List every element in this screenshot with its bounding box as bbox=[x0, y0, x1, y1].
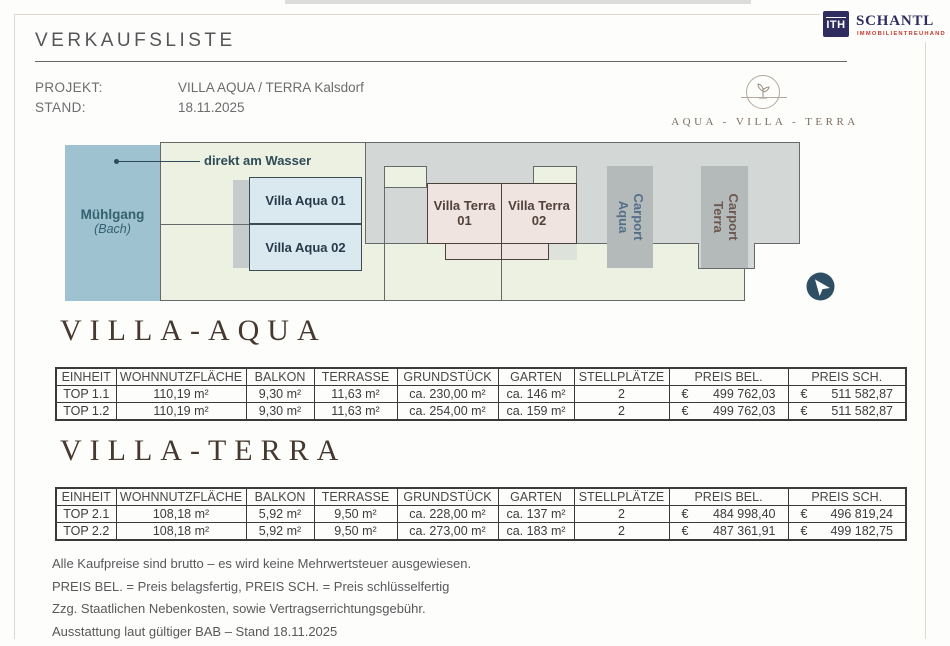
villa-terra-02-label: Villa Terra bbox=[508, 198, 570, 213]
cell-stellplaetze: 2 bbox=[574, 523, 669, 541]
cell-preis-sch: €496 819,24 bbox=[788, 506, 906, 523]
cell-stellplaetze: 2 bbox=[574, 403, 669, 421]
green-tab-left bbox=[384, 166, 427, 188]
cell-wohnnutzflaeche: 108,18 m² bbox=[116, 523, 246, 541]
site-plan: Mühlgang (Bach) Villa Aqua 01 Villa Aqua… bbox=[65, 140, 800, 302]
footnote-line: Alle Kaufpreise sind brutto – es wird ke… bbox=[52, 556, 471, 571]
cell-garten: ca. 137 m² bbox=[498, 506, 574, 523]
cell-preis-bel: €499 762,03 bbox=[669, 386, 788, 403]
villa-terra-01-step bbox=[445, 243, 502, 260]
footnote-line: PREIS BEL. = Preis belagsfertig, PREIS S… bbox=[52, 579, 471, 594]
cell-einheit: TOP 1.2 bbox=[56, 403, 116, 421]
cell-preis-sch: €511 582,87 bbox=[788, 403, 906, 421]
currency-symbol: € bbox=[801, 386, 808, 402]
company-logo: ITH SCHANTL IMMOBILIENTREUHAND bbox=[820, 8, 945, 42]
cell-grundstueck: ca. 228,00 m² bbox=[397, 506, 498, 523]
col-stellplaetze: STELLPLÄTZE bbox=[574, 488, 669, 506]
villa-aqua-01-building: Villa Aqua 01 bbox=[249, 177, 362, 224]
cell-terrasse: 11,63 m² bbox=[314, 386, 397, 403]
aqua-parcel-line bbox=[160, 224, 249, 225]
col-garten: GARTEN bbox=[498, 488, 574, 506]
cell-terrasse: 11,63 m² bbox=[314, 403, 397, 421]
table-row: TOP 2.2 108,18 m² 5,92 m² 9,50 m² ca. 27… bbox=[56, 523, 906, 541]
cell-terrasse: 9,50 m² bbox=[314, 523, 397, 541]
footnote-line: Zzg. Staatlichen Nebenkosten, sowie Vert… bbox=[52, 601, 471, 616]
cell-preis-sch: €511 582,87 bbox=[788, 386, 906, 403]
col-preis-sch: PREIS SCH. bbox=[788, 368, 906, 386]
cell-einheit: TOP 2.2 bbox=[56, 523, 116, 541]
cell-balkon: 9,30 m² bbox=[246, 403, 314, 421]
price-value: 496 819,24 bbox=[830, 506, 893, 522]
cell-stellplaetze: 2 bbox=[574, 386, 669, 403]
currency-symbol: € bbox=[682, 523, 689, 539]
ith-logo-text: ITH bbox=[826, 17, 845, 31]
col-balkon: BALKON bbox=[246, 368, 314, 386]
table-row: TOP 2.1 108,18 m² 5,92 m² 9,50 m² ca. 22… bbox=[56, 506, 906, 523]
cell-preis-bel: €484 998,40 bbox=[669, 506, 788, 523]
cell-garten: ca. 146 m² bbox=[498, 386, 574, 403]
col-preis-sch: PREIS SCH. bbox=[788, 488, 906, 506]
company-subtitle: IMMOBILIENTREUHAND bbox=[857, 31, 946, 37]
north-arrow-icon bbox=[806, 272, 835, 301]
villa-terra-01-building: Villa Terra 01 bbox=[427, 183, 502, 244]
garden-divider-line bbox=[501, 260, 502, 301]
footnote-line: Ausstattung laut gültiger BAB – Stand 18… bbox=[52, 624, 471, 639]
cell-preis-bel: €499 762,03 bbox=[669, 403, 788, 421]
project-label: PROJEKT: bbox=[35, 80, 103, 95]
cell-terrasse: 9,50 m² bbox=[314, 506, 397, 523]
water-area: Mühlgang (Bach) bbox=[65, 145, 160, 301]
villa-aqua-01-label: Villa Aqua 01 bbox=[265, 193, 345, 208]
carport-aqua-building: Carport Aqua bbox=[607, 166, 653, 268]
col-preis-bel: PREIS BEL. bbox=[669, 488, 788, 506]
villa-terra-table: EINHEIT WOHNNUTZFLÄCHE BALKON TERRASSE G… bbox=[55, 487, 905, 541]
table-header-row: EINHEIT WOHNNUTZFLÄCHE BALKON TERRASSE G… bbox=[56, 488, 906, 506]
villa-terra-01-label: Villa Terra bbox=[434, 198, 496, 213]
estate-logo-caption: AQUA - VILLA - TERRA bbox=[665, 116, 865, 128]
price-value: 499 762,03 bbox=[713, 386, 776, 402]
currency-symbol: € bbox=[801, 523, 808, 539]
water-name: Mühlgang bbox=[65, 207, 160, 222]
stand-value: 18.11.2025 bbox=[178, 100, 245, 115]
section-title-villa-aqua: VILLA-AQUA bbox=[60, 314, 327, 348]
cell-balkon: 9,30 m² bbox=[246, 386, 314, 403]
villa-aqua-02-building: Villa Aqua 02 bbox=[249, 224, 362, 271]
cell-wohnnutzflaeche: 110,19 m² bbox=[116, 386, 246, 403]
cell-grundstueck: ca. 254,00 m² bbox=[397, 403, 498, 421]
page-title: VERKAUFSLISTE bbox=[35, 30, 236, 52]
cell-grundstueck: ca. 273,00 m² bbox=[397, 523, 498, 541]
title-rule bbox=[35, 61, 847, 62]
col-garten: GARTEN bbox=[498, 368, 574, 386]
col-grundstueck: GRUNDSTÜCK bbox=[397, 488, 498, 506]
price-value: 484 998,40 bbox=[713, 506, 776, 522]
col-terrasse: TERRASSE bbox=[314, 368, 397, 386]
estate-logo-groundline bbox=[741, 97, 787, 98]
cell-stellplaetze: 2 bbox=[574, 506, 669, 523]
villa-terra-02-building: Villa Terra 02 bbox=[501, 183, 577, 244]
carport-aqua-label2: Aqua bbox=[615, 167, 630, 267]
water-note-line bbox=[118, 161, 200, 162]
footnotes: Alle Kaufpreise sind brutto – es wird ke… bbox=[52, 556, 471, 646]
price-value: 511 582,87 bbox=[831, 386, 893, 402]
col-wohnnutzflaeche: WOHNNUTZFLÄCHE bbox=[116, 488, 246, 506]
carport-terra-label: Carport bbox=[725, 167, 740, 267]
cell-wohnnutzflaeche: 108,18 m² bbox=[116, 506, 246, 523]
estate-logo-circle bbox=[746, 75, 780, 109]
villa-terra-02-number: 02 bbox=[532, 213, 546, 228]
col-einheit: EINHEIT bbox=[56, 488, 116, 506]
currency-symbol: € bbox=[801, 506, 808, 522]
cell-grundstueck: ca. 230,00 m² bbox=[397, 386, 498, 403]
cell-wohnnutzflaeche: 110,19 m² bbox=[116, 403, 246, 421]
table-row: TOP 1.1 110,19 m² 9,30 m² 11,63 m² ca. 2… bbox=[56, 386, 906, 403]
col-wohnnutzflaeche: WOHNNUTZFLÄCHE bbox=[116, 368, 246, 386]
water-note-label: direkt am Wasser bbox=[204, 153, 311, 168]
ith-logo-icon: ITH bbox=[823, 11, 849, 37]
cell-preis-bel: €487 361,91 bbox=[669, 523, 788, 541]
cell-einheit: TOP 1.1 bbox=[56, 386, 116, 403]
table-row: TOP 1.2 110,19 m² 9,30 m² 11,63 m² ca. 2… bbox=[56, 403, 906, 421]
parcel-divider-line bbox=[384, 166, 385, 301]
carport-terra-label2: Terra bbox=[710, 167, 725, 267]
currency-symbol: € bbox=[682, 403, 689, 419]
project-value: VILLA AQUA / TERRA Kalsdorf bbox=[178, 80, 364, 95]
currency-symbol: € bbox=[682, 386, 689, 402]
water-subname: (Bach) bbox=[65, 222, 160, 236]
col-balkon: BALKON bbox=[246, 488, 314, 506]
col-grundstueck: GRUNDSTÜCK bbox=[397, 368, 498, 386]
cell-garten: ca. 183 m² bbox=[498, 523, 574, 541]
price-value: 487 361,91 bbox=[713, 523, 776, 539]
cell-balkon: 5,92 m² bbox=[246, 506, 314, 523]
col-einheit: EINHEIT bbox=[56, 368, 116, 386]
villa-terra-shadow bbox=[549, 244, 577, 260]
top-edge-strip bbox=[285, 0, 751, 4]
col-preis-bel: PREIS BEL. bbox=[669, 368, 788, 386]
company-name: SCHANTL bbox=[856, 13, 934, 30]
cell-einheit: TOP 2.1 bbox=[56, 506, 116, 523]
col-stellplaetze: STELLPLÄTZE bbox=[574, 368, 669, 386]
carport-aqua-label: Carport bbox=[630, 167, 645, 267]
table-header-row: EINHEIT WOHNNUTZFLÄCHE BALKON TERRASSE G… bbox=[56, 368, 906, 386]
cell-preis-sch: €499 182,75 bbox=[788, 523, 906, 541]
cell-garten: ca. 159 m² bbox=[498, 403, 574, 421]
villa-aqua-table: EINHEIT WOHNNUTZFLÄCHE BALKON TERRASSE G… bbox=[55, 367, 905, 421]
price-value: 499 762,03 bbox=[713, 403, 776, 419]
carport-terra-building: Carport Terra bbox=[701, 166, 748, 268]
price-value: 511 582,87 bbox=[831, 403, 893, 419]
villa-terra-02-step bbox=[501, 243, 549, 260]
stand-label: STAND: bbox=[35, 100, 86, 115]
sprout-icon bbox=[747, 76, 779, 108]
section-title-villa-terra: VILLA-TERRA bbox=[60, 434, 346, 468]
villa-terra-01-number: 01 bbox=[457, 213, 471, 228]
col-terrasse: TERRASSE bbox=[314, 488, 397, 506]
villa-aqua-02-label: Villa Aqua 02 bbox=[265, 240, 345, 255]
currency-symbol: € bbox=[801, 403, 808, 419]
price-value: 499 182,75 bbox=[830, 523, 893, 539]
currency-symbol: € bbox=[682, 506, 689, 522]
cell-balkon: 5,92 m² bbox=[246, 523, 314, 541]
